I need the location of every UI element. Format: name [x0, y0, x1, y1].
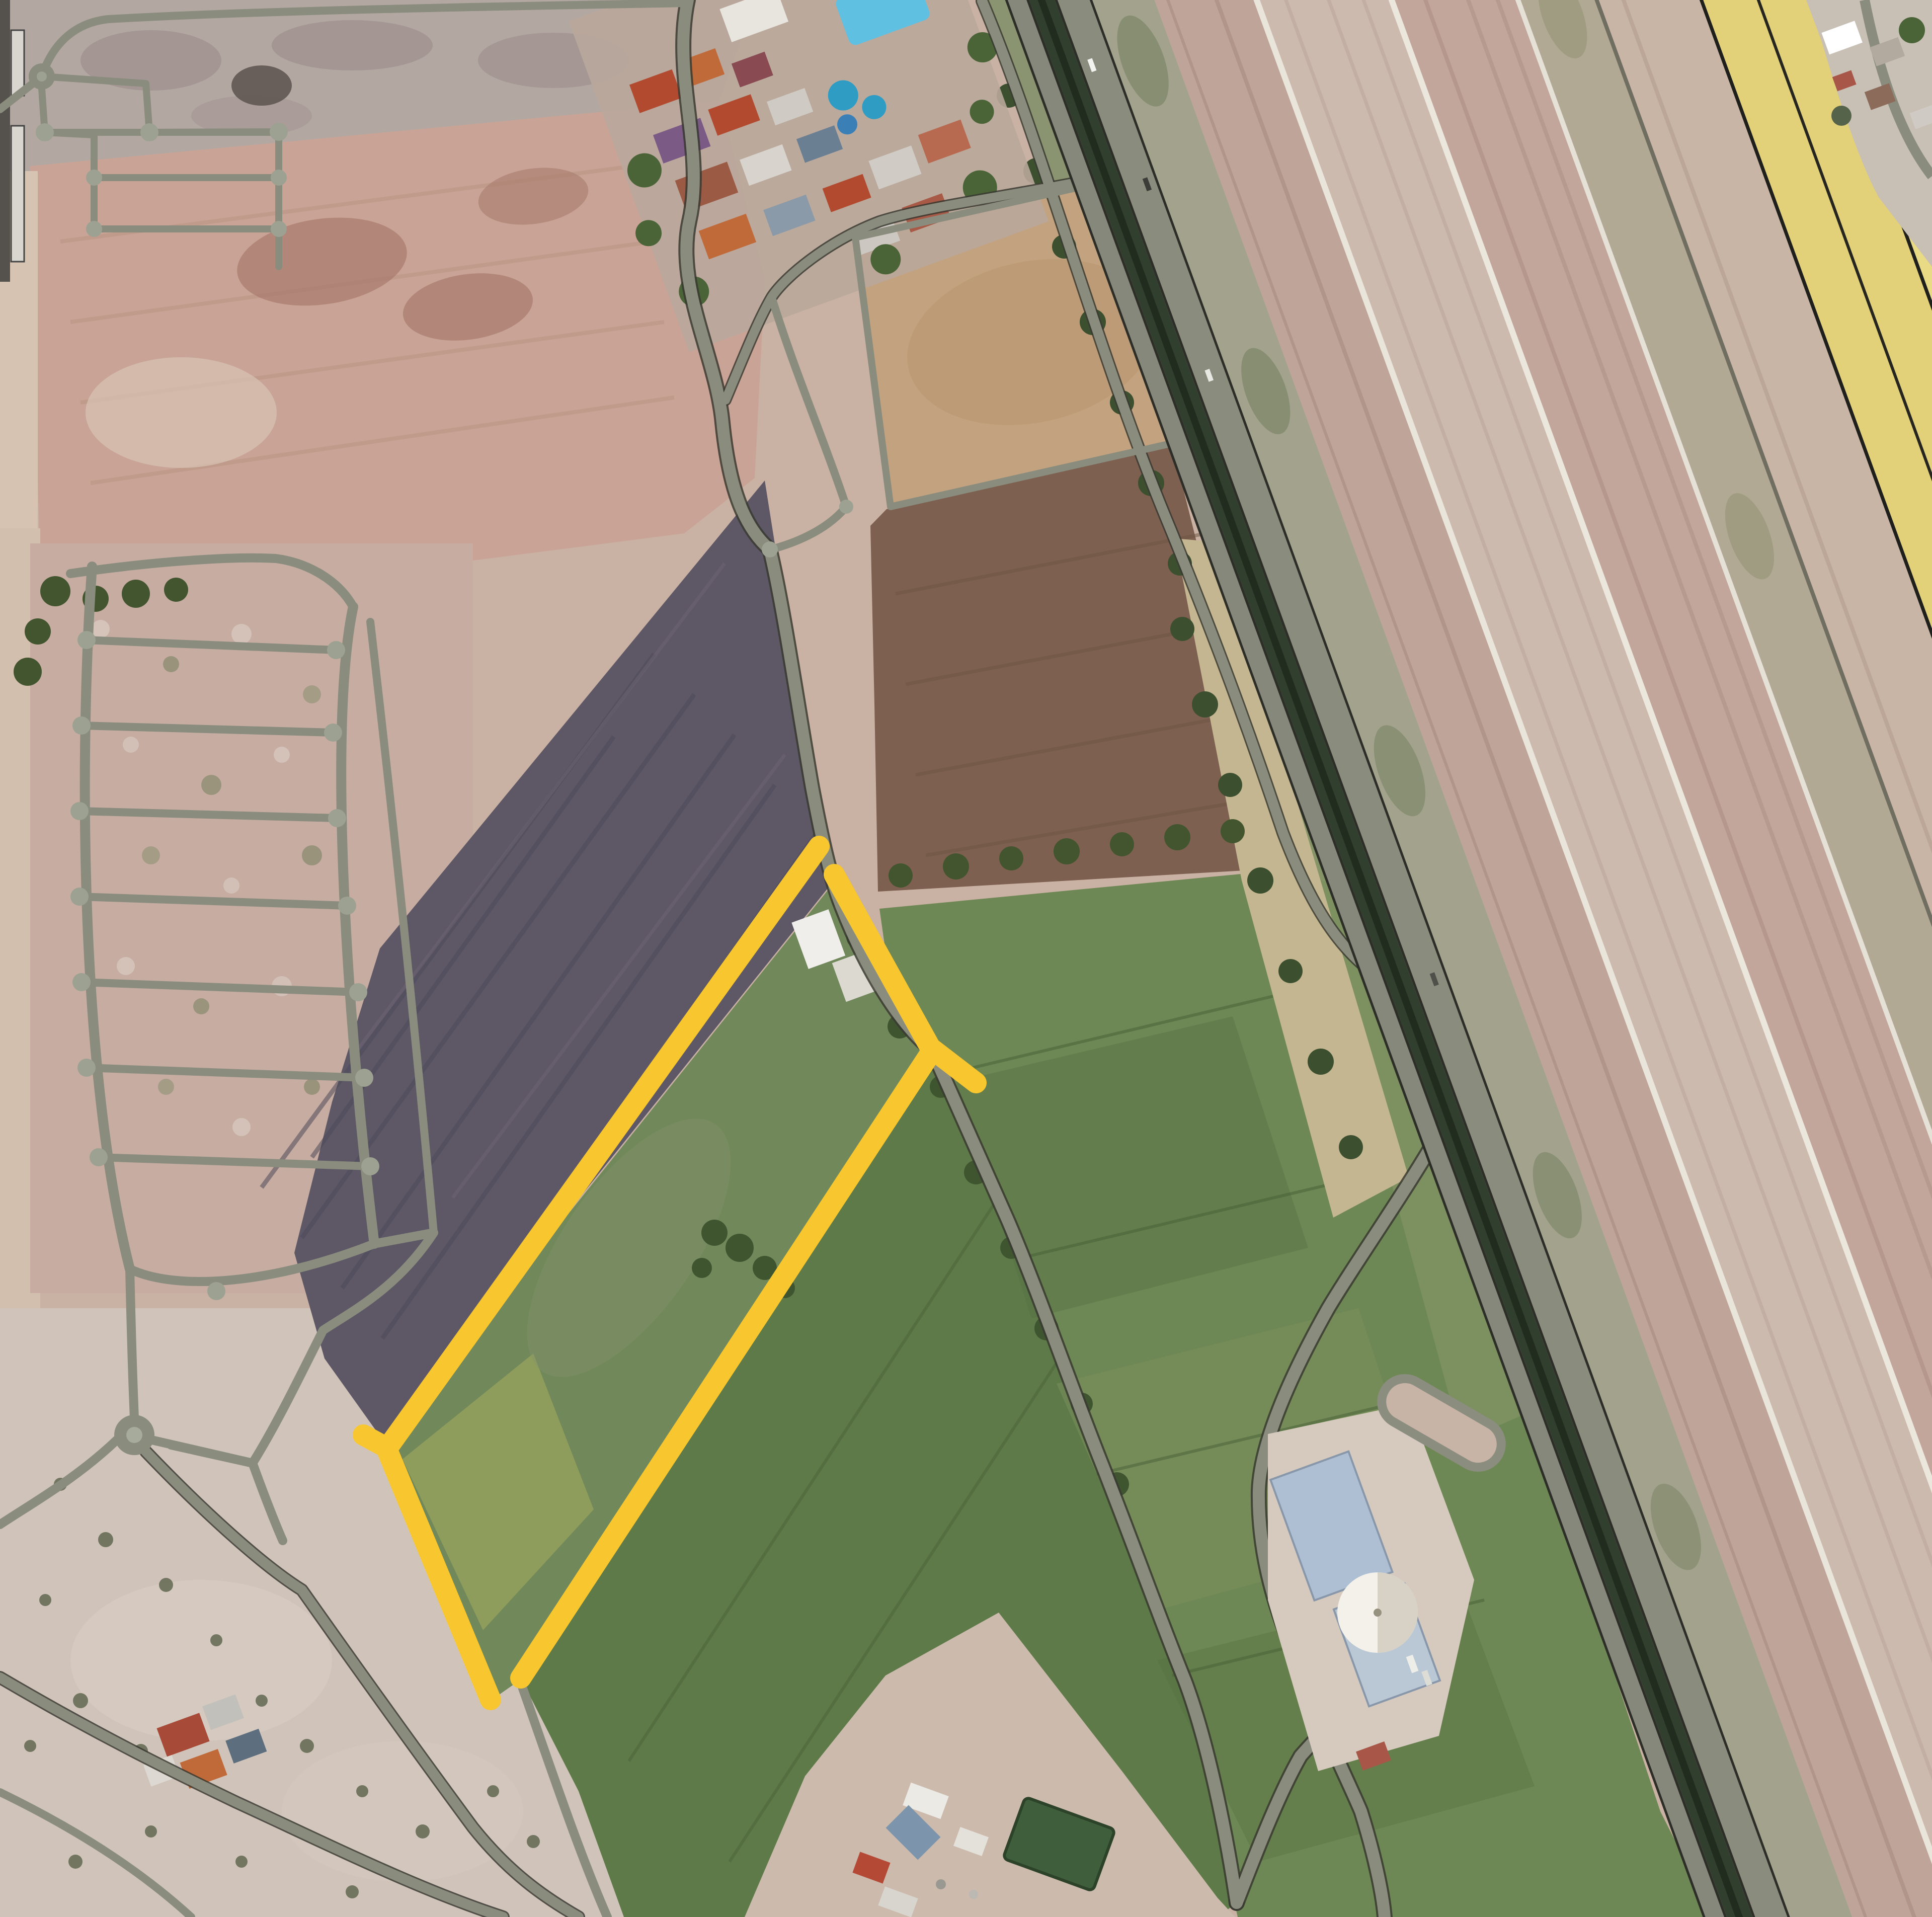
satellite-map[interactable]	[0, 0, 1932, 1917]
storage-dome	[1337, 1572, 1418, 1653]
roundabout-northwest	[29, 63, 55, 90]
roundabout-southwest	[114, 1415, 154, 1455]
map-canvas[interactable]	[0, 0, 1932, 1917]
